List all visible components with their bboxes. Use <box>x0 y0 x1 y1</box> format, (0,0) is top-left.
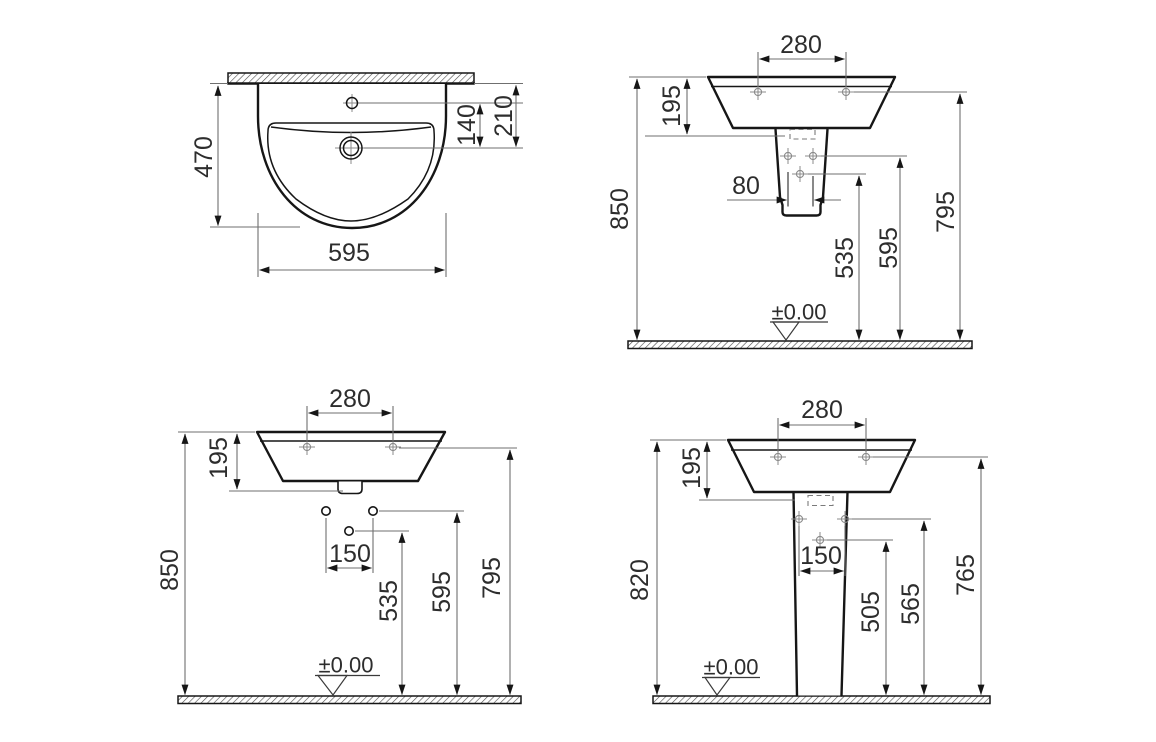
drain-spigot <box>338 482 362 494</box>
dim-label-h3: 765 <box>952 554 980 596</box>
floor-hatch <box>628 341 972 349</box>
pedestal-fill <box>794 492 848 696</box>
wall-fixing-hole <box>345 527 353 535</box>
floor-hatch <box>178 696 521 704</box>
dim-label-hole-spacing: 280 <box>801 396 843 424</box>
dim-label-h1: 535 <box>831 237 859 279</box>
floor-hatch <box>653 696 990 704</box>
technical-drawing-svg: 470 595 140 210 280 195 850 <box>0 0 1156 742</box>
dim-label-rim: 195 <box>658 85 686 127</box>
dim-label-h1: 535 <box>375 580 403 622</box>
wall-hung-view: 280 195 850 150 535 595 795 ±0.00 <box>156 385 521 704</box>
pedestal-view: 280 195 820 150 505 565 765 ±0.00 <box>626 396 990 704</box>
basin-outline <box>728 440 915 492</box>
semi-pedestal-view: 280 195 850 80 535 595 795 ±0.00 <box>606 31 972 349</box>
dim-label-height: 820 <box>626 559 654 601</box>
dim-label-h2: 595 <box>875 227 903 269</box>
plan-view: 470 595 140 210 <box>190 73 523 277</box>
dim-label-rim: 195 <box>678 447 706 489</box>
datum-label: ±0.00 <box>704 655 759 680</box>
dim-label-h3: 795 <box>932 191 960 233</box>
datum-triangle-icon <box>318 676 347 696</box>
dim-label-outlet: 80 <box>732 172 760 200</box>
dim-label-hole-spacing: 280 <box>780 31 822 59</box>
dim-label-tap-drain: 140 <box>453 104 481 146</box>
datum-triangle-icon <box>773 322 799 340</box>
dim-label-height: 850 <box>606 188 634 230</box>
dim-label-hole-spacing: 280 <box>329 385 371 413</box>
wall-section-hatch <box>228 73 474 84</box>
datum-label: ±0.00 <box>772 300 827 325</box>
dim-label-depth: 470 <box>190 136 218 178</box>
datum-triangle-icon <box>705 678 730 696</box>
wall-fixing-hole <box>369 507 377 515</box>
drawing-sheet: 470 595 140 210 280 195 850 <box>0 0 1156 742</box>
dim-label-fixing-spacing: 150 <box>329 540 371 568</box>
dim-label-wall-drain: 210 <box>490 95 518 137</box>
basin-outline <box>708 77 895 128</box>
dim-label-rim: 195 <box>205 437 233 479</box>
dim-label-h1: 505 <box>857 591 885 633</box>
dim-label-width: 595 <box>328 239 370 267</box>
semi-pedestal-outline <box>776 129 828 216</box>
dim-label-h2: 565 <box>897 583 925 625</box>
dim-label-h3: 795 <box>478 557 506 599</box>
basin-outline <box>257 432 445 481</box>
wall-fixing-hole <box>322 507 330 515</box>
dim-label-h2: 595 <box>428 571 456 613</box>
dim-label-height: 850 <box>156 549 184 591</box>
dim-label-fixing-spacing: 150 <box>800 542 842 570</box>
datum-label: ±0.00 <box>319 653 374 678</box>
